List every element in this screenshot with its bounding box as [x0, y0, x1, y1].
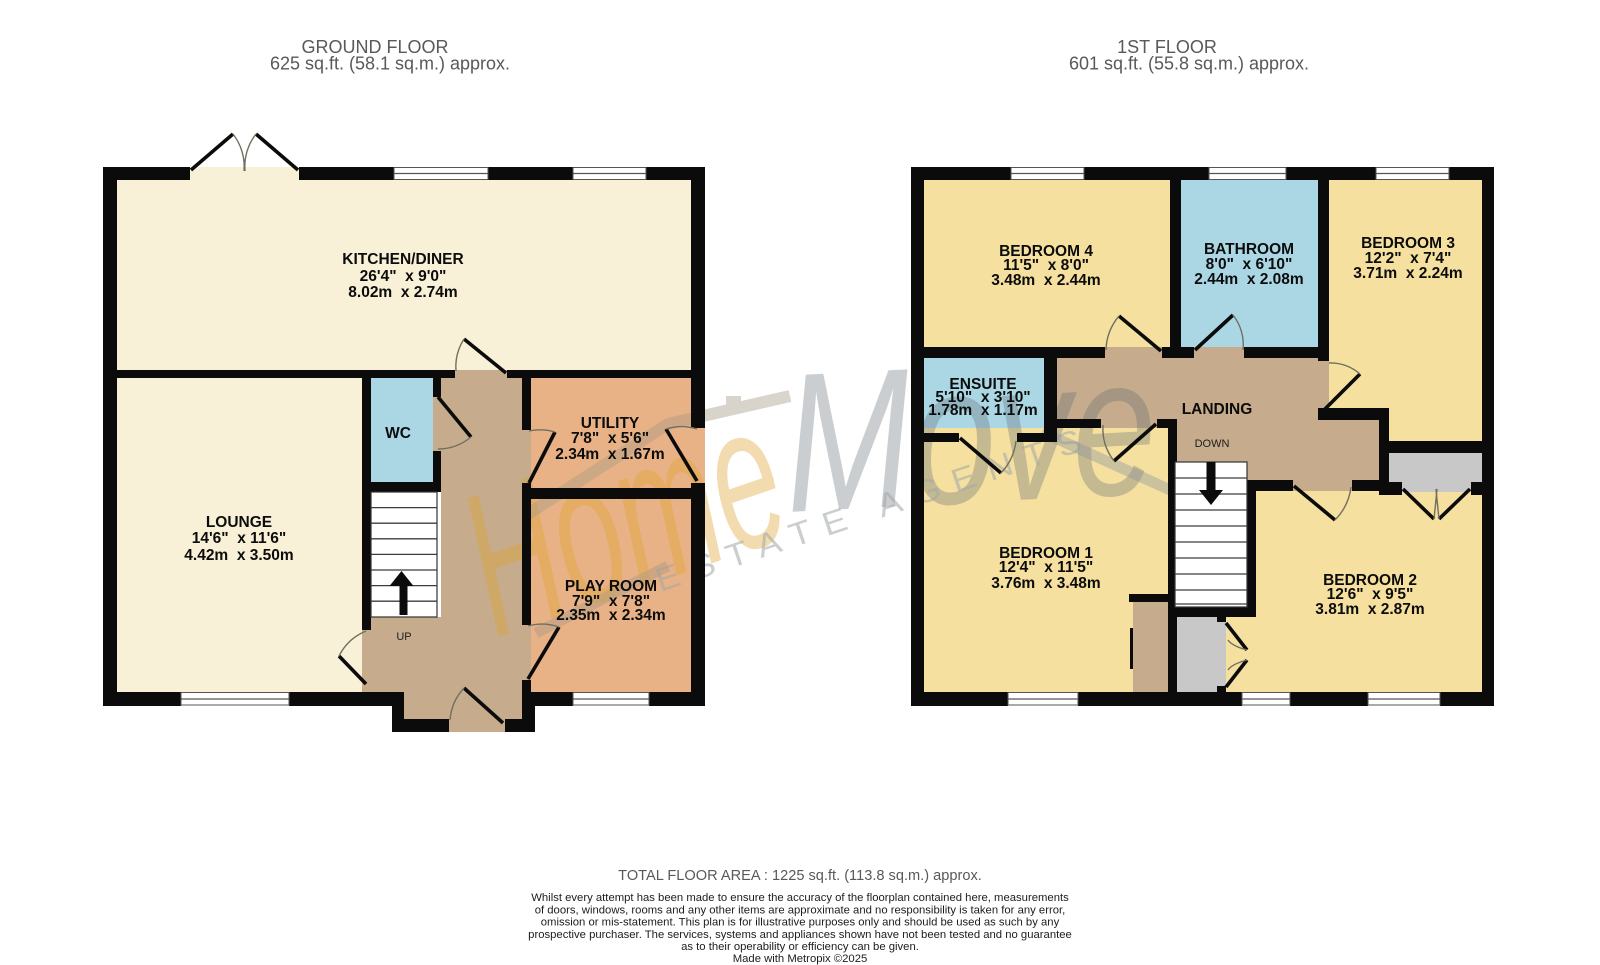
svg-text:4.42m x 3.50m: 4.42m x 3.50m	[184, 547, 293, 564]
svg-text:2.35m x 2.34m: 2.35m x 2.34m	[556, 607, 665, 624]
svg-text:of doors, windows, rooms and a: of doors, windows, rooms and any other i…	[535, 904, 1066, 916]
svg-text:as to their operability or eff: as to their operability or efficiency ca…	[681, 941, 919, 953]
svg-text:TOTAL FLOOR AREA : 1225 sq.ft.: TOTAL FLOOR AREA : 1225 sq.ft. (113.8 sq…	[618, 868, 982, 884]
svg-text:WC: WC	[385, 425, 411, 442]
svg-text:625 sq.ft. (58.1 sq.m.) approx: 625 sq.ft. (58.1 sq.m.) approx.	[270, 54, 510, 74]
svg-text:LANDING: LANDING	[1182, 401, 1253, 418]
svg-text:2.44m x 2.08m: 2.44m x 2.08m	[1194, 271, 1303, 288]
svg-text:Made with Metropix ©2025: Made with Metropix ©2025	[733, 953, 868, 965]
svg-text:DOWN: DOWN	[1195, 438, 1230, 450]
svg-text:3.81m x 2.87m: 3.81m x 2.87m	[1315, 601, 1424, 618]
svg-text:3.76m x 3.48m: 3.76m x 3.48m	[991, 575, 1100, 592]
svg-text:8.02m x 2.74m: 8.02m x 2.74m	[348, 284, 457, 301]
svg-text:KITCHEN/DINER: KITCHEN/DINER	[342, 251, 463, 268]
svg-text:1.78m x 1.17m: 1.78m x 1.17m	[928, 402, 1037, 419]
svg-text:26'4" x 9'0": 26'4" x 9'0"	[360, 268, 447, 285]
svg-text:prospective purchaser. The ser: prospective purchaser. The services, sys…	[528, 929, 1072, 941]
svg-text:omission or mis-statement. Thi: omission or mis-statement. This plan is …	[541, 917, 1060, 929]
svg-text:12'4" x 11'5": 12'4" x 11'5"	[999, 559, 1093, 576]
svg-text:LOUNGE: LOUNGE	[206, 514, 272, 531]
svg-text:3.71m x 2.24m: 3.71m x 2.24m	[1353, 265, 1462, 282]
svg-text:7'8" x 5'6": 7'8" x 5'6"	[571, 430, 649, 447]
svg-text:3.48m x 2.44m: 3.48m x 2.44m	[991, 272, 1100, 289]
svg-text:14'6" x 11'6": 14'6" x 11'6"	[192, 530, 286, 547]
svg-text:Whilst every attempt has been: Whilst every attempt has been made to en…	[531, 892, 1069, 904]
svg-text:UP: UP	[396, 631, 411, 643]
svg-text:2.34m x 1.67m: 2.34m x 1.67m	[555, 446, 664, 463]
svg-text:601 sq.ft. (55.8 sq.m.) approx: 601 sq.ft. (55.8 sq.m.) approx.	[1069, 54, 1309, 74]
